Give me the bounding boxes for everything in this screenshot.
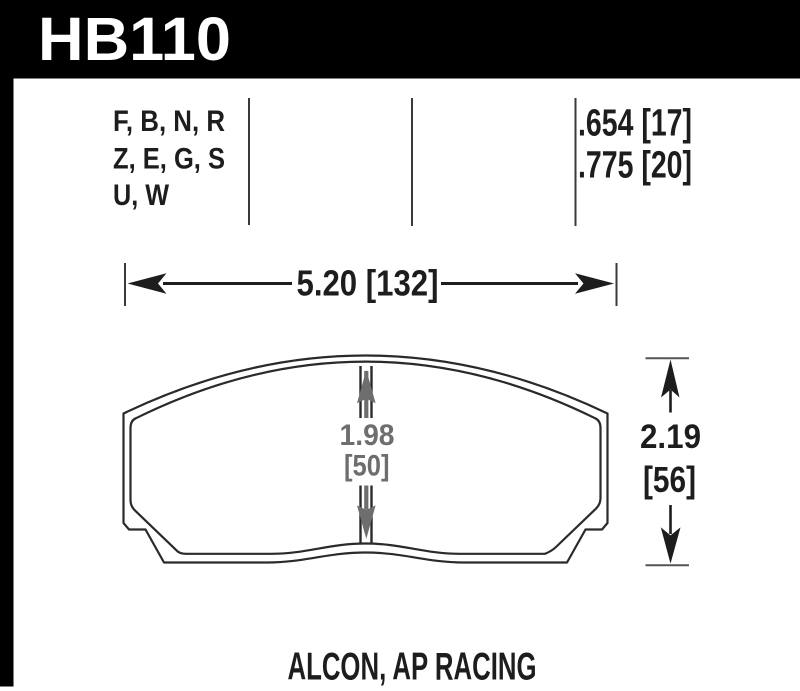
- svg-text:.654 [17]: .654 [17]: [578, 103, 692, 145]
- svg-text:ALCON, AP RACING: ALCON, AP RACING: [288, 645, 537, 688]
- svg-text:F, B, N, R: F, B, N, R: [113, 105, 225, 138]
- svg-text:[56]: [56]: [643, 459, 696, 500]
- svg-text:.775 [20]: .775 [20]: [578, 145, 692, 187]
- svg-text:Z, E, G, S: Z, E, G, S: [113, 143, 225, 176]
- svg-text:1.98: 1.98: [340, 419, 395, 452]
- svg-text:2.19: 2.19: [640, 418, 701, 456]
- svg-text:5.20 [132]: 5.20 [132]: [297, 263, 439, 304]
- svg-text:[50]: [50]: [344, 450, 390, 483]
- svg-text:HB110: HB110: [38, 5, 231, 73]
- svg-text:U, W: U, W: [113, 179, 170, 212]
